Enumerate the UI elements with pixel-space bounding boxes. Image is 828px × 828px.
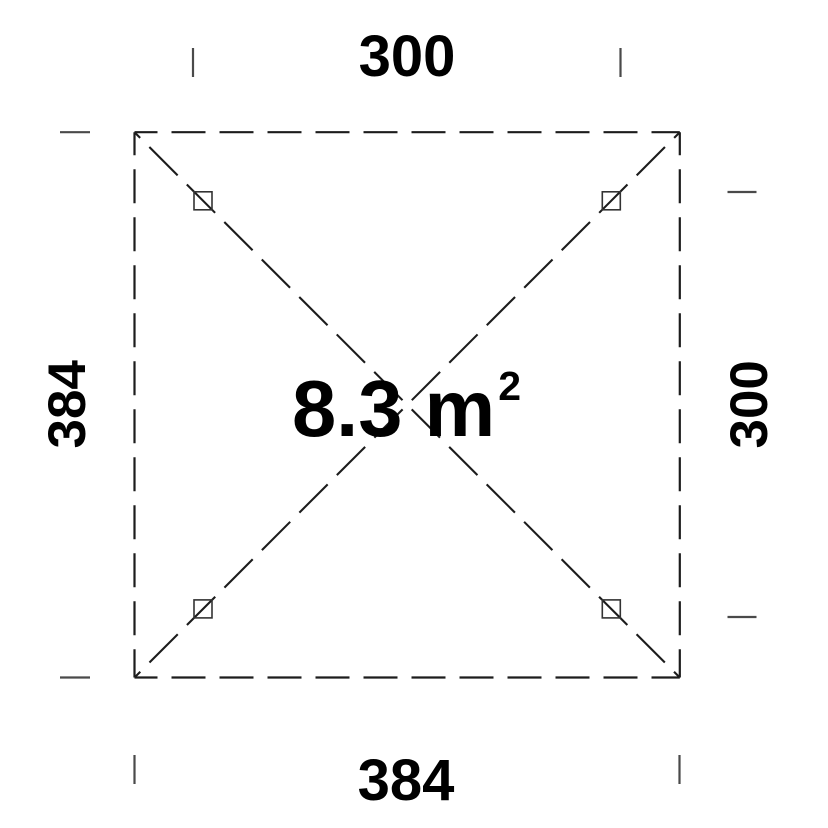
svg-text:300: 300 bbox=[359, 24, 456, 89]
svg-text:8.3 m2: 8.3 m2 bbox=[292, 363, 521, 453]
svg-text:300: 300 bbox=[720, 360, 779, 448]
svg-text:384: 384 bbox=[38, 360, 97, 449]
svg-text:384: 384 bbox=[358, 748, 455, 813]
